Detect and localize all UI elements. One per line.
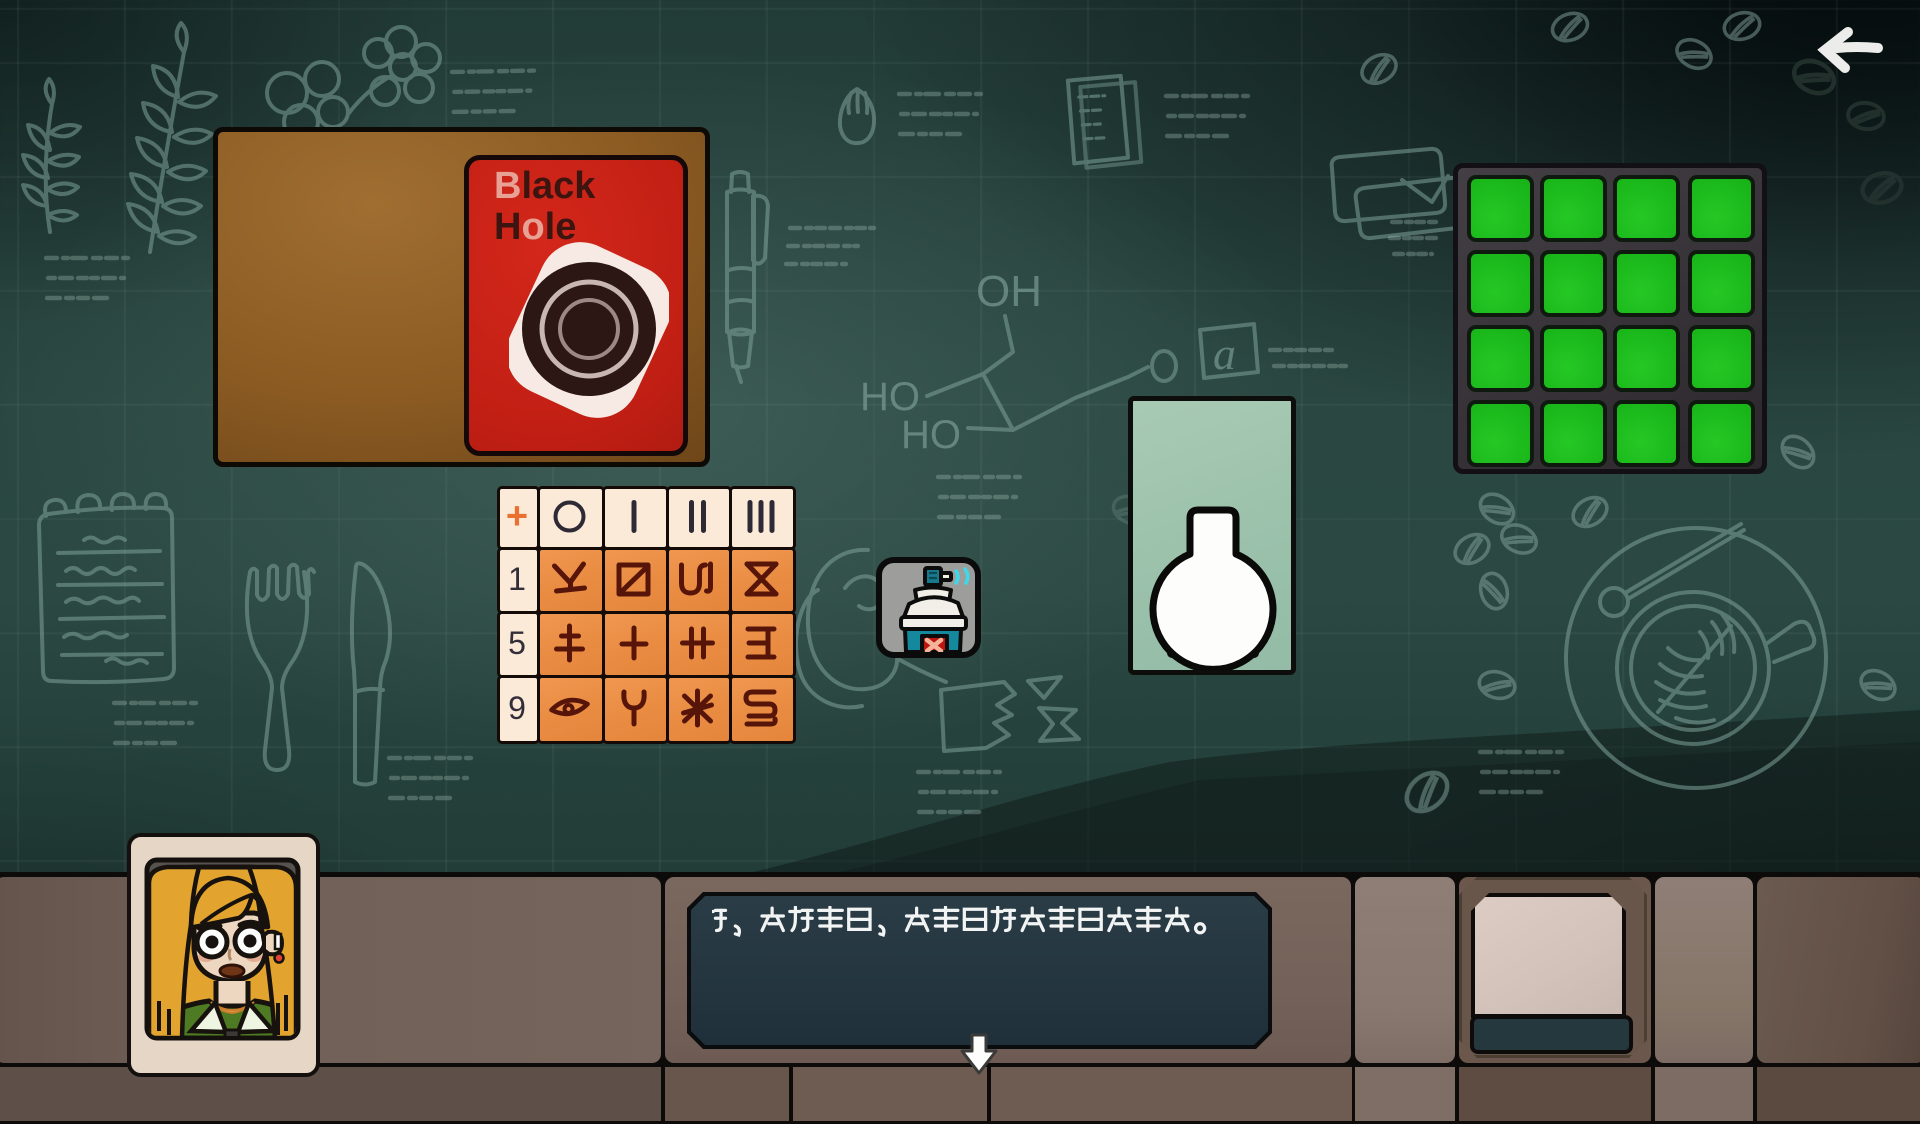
svg-text:9: 9 <box>508 690 526 726</box>
svg-text:OH: OH <box>976 267 1042 316</box>
svg-text:HO: HO <box>901 413 961 457</box>
svg-text:a: a <box>1213 328 1236 379</box>
svg-text:1: 1 <box>508 561 526 597</box>
svg-text:5: 5 <box>508 625 526 661</box>
svg-text:+: + <box>506 496 528 538</box>
